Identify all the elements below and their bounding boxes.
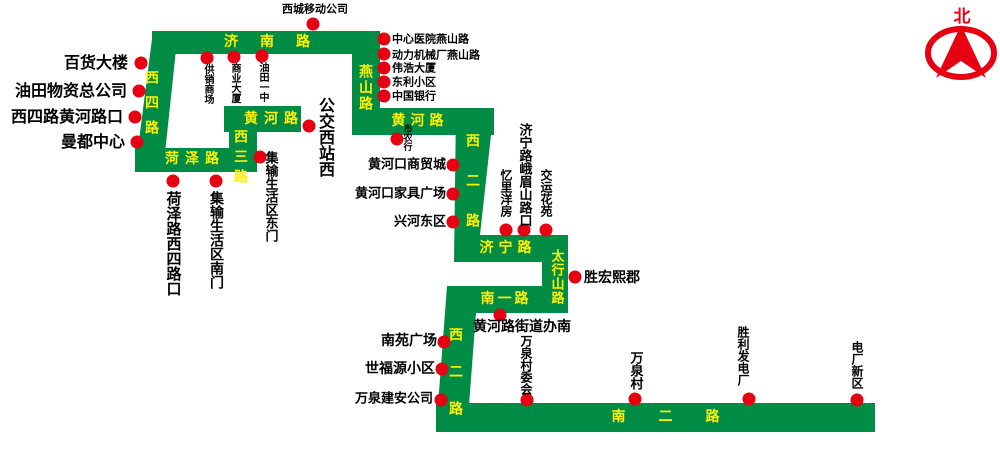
stop-dot-dongli-xiaoqu xyxy=(378,76,391,89)
stop-label-shifuyuan-xiaoqu: 世福源小区 xyxy=(365,362,435,376)
stop-dot-dianchang-xinqu xyxy=(851,394,864,407)
stop-dot-shangye-dasha xyxy=(228,51,241,64)
road-label-naner-lu: 南二路 xyxy=(612,410,753,424)
stop-label-youtian-wuzi: 油田物资总公司 xyxy=(15,83,127,99)
stop-label-wanquancun: 万泉村 xyxy=(629,351,642,390)
stop-label-zhongxin-yiyuan: 中心医院燕山路 xyxy=(392,34,469,45)
stop-dot-weihao-dasha xyxy=(378,62,391,75)
compass-north-label: 北 xyxy=(954,7,971,27)
stop-dot-jishu-nanmen xyxy=(210,175,223,188)
road-label-jinan-lu: 济南路 xyxy=(224,35,332,49)
stop-dot-xisilu-huanghelukou xyxy=(129,111,142,124)
stop-dot-zhongxin-yiyuan xyxy=(378,33,391,46)
road-label-jining-lu: 济宁路 xyxy=(480,241,537,255)
stop-label-baihuo-dalou: 百货大楼 xyxy=(64,55,128,71)
stop-label-xicheng-yidong: 西城移动公司 xyxy=(282,4,348,15)
stop-dot-xinghe-dongqu xyxy=(447,216,460,229)
road-label-xisan-lu: 西三路 xyxy=(233,129,247,189)
stop-dot-wanquancun-weihui xyxy=(521,394,534,407)
stop-label-dongli-xiaoqu: 东利小区 xyxy=(392,77,436,88)
stop-dot-shengli-fadianchang xyxy=(743,393,756,406)
stop-label-hezelu-xisilukou: 荷泽路西四路口 xyxy=(166,191,181,296)
stop-label-gongjiao-xizhan-xi: 公交西站西 xyxy=(317,97,333,177)
stop-label-jininglu-emeishan: 济宁路峨眉山路口 xyxy=(518,123,531,227)
road-label-yanshan-lu: 燕山路 xyxy=(358,64,372,112)
stop-label-jishu-nanmen: 集输生活区南门 xyxy=(209,191,223,289)
stop-label-weihao-dasha: 伟浩大厦 xyxy=(392,63,436,74)
compass: 北 xyxy=(928,7,994,78)
stop-dot-gongjiao-xizhan-xi xyxy=(303,120,316,133)
stop-dot-huanghekou-shangmaocheng xyxy=(447,159,460,172)
stop-label-shenghong-xijun: 胜宏熙郡 xyxy=(584,271,640,285)
stop-dot-hezelu-xisilukou xyxy=(167,175,180,188)
stop-label-xinghe-dongqu: 兴河东区 xyxy=(394,216,446,229)
stop-dot-youtian-wuzi xyxy=(133,85,146,98)
stop-dot-dongli-jixiechang xyxy=(378,48,391,61)
road-label-heze-lu: 菏泽路 xyxy=(165,152,225,166)
stop-label-huanghekou-jiaju: 黄河口家具广场 xyxy=(355,188,446,201)
stop-dot-mandu-zhongxin xyxy=(131,136,144,149)
stop-label-dianchang-xinqu: 电厂新区 xyxy=(851,341,863,389)
road-label-xier-lu-north: 西二路 xyxy=(465,133,479,253)
stop-label-yili-yangfang: 忆里洋房 xyxy=(500,169,512,217)
stop-label-jishu-dongmen: 集输生活区东门 xyxy=(264,151,277,242)
road-label-taihangshan-lu: 太行山路 xyxy=(550,249,563,305)
stop-label-nanyuan-guangchang: 南苑广场 xyxy=(381,334,437,348)
stop-label-dongli-jixiechang: 动力机械厂燕山路 xyxy=(392,50,480,61)
stop-label-jiaoyun-huayuan: 交运花苑 xyxy=(540,169,552,217)
stop-label-wanquan-jianan: 万泉建安公司 xyxy=(355,393,433,406)
stop-dot-xicheng-yidong xyxy=(307,18,320,31)
stop-label-huanghekou-shangmaocheng: 黄河口商贸城 xyxy=(368,159,446,172)
stop-dot-huanghekou-jiaju xyxy=(447,188,460,201)
stop-label-mandu-zhongxin: 曼都中心 xyxy=(61,134,125,150)
stop-label-shengli-fadianchang: 胜利发电厂 xyxy=(737,326,749,386)
stop-label-xisilu-huanghelukou: 西四路黄河路口 xyxy=(11,109,123,125)
stop-dot-shifuyuan-xiaoqu xyxy=(436,363,449,376)
stop-dot-wanquan-jianan xyxy=(435,394,448,407)
stop-dot-gongxiao-shangchang xyxy=(201,52,214,65)
stop-dot-zhongguo-yinhang xyxy=(378,90,391,103)
stop-dot-wanquancun xyxy=(629,393,642,406)
stop-dot-baihuo-dalou xyxy=(135,57,148,70)
stop-label-zhongguo-yinhang: 中国银行 xyxy=(392,91,436,102)
road-label-xisi-lu: 西四路 xyxy=(144,70,158,145)
stop-label-shi-nong-hang: 市农行 xyxy=(402,124,411,151)
stop-label-wanquancun-weihui: 万泉村委会 xyxy=(520,335,532,395)
stop-label-huanghelu-jiedaoban: 黄河路街道办南 xyxy=(473,320,571,334)
road-label-huanghe-lu-west: 黄河路 xyxy=(244,112,304,126)
road-label-nanyi-lu: 南一路 xyxy=(481,292,532,306)
bus-route-map: 北 济南路 西四路 菏泽路 西三路 黄河路 燕山路 黄河路 西二路 济宁路 太行… xyxy=(0,0,1000,456)
stop-dot-jiaoyun-huayuan xyxy=(540,224,553,237)
stop-dot-yili-yangfang xyxy=(500,224,513,237)
stop-dot-nanyuan-guangchang xyxy=(438,336,451,349)
stop-label-shangye-dasha: 商业大厦 xyxy=(229,63,239,103)
stop-label-gongxiao-shangchang: 供销商场 xyxy=(202,64,212,104)
stop-dot-shenghong-xijun xyxy=(569,271,582,284)
stop-dot-youtian-yizhong xyxy=(256,50,269,63)
stop-label-youtian-yizhong: 油田一中 xyxy=(257,62,267,102)
road-label-huanghe-lu-east: 黄河路 xyxy=(392,114,449,128)
